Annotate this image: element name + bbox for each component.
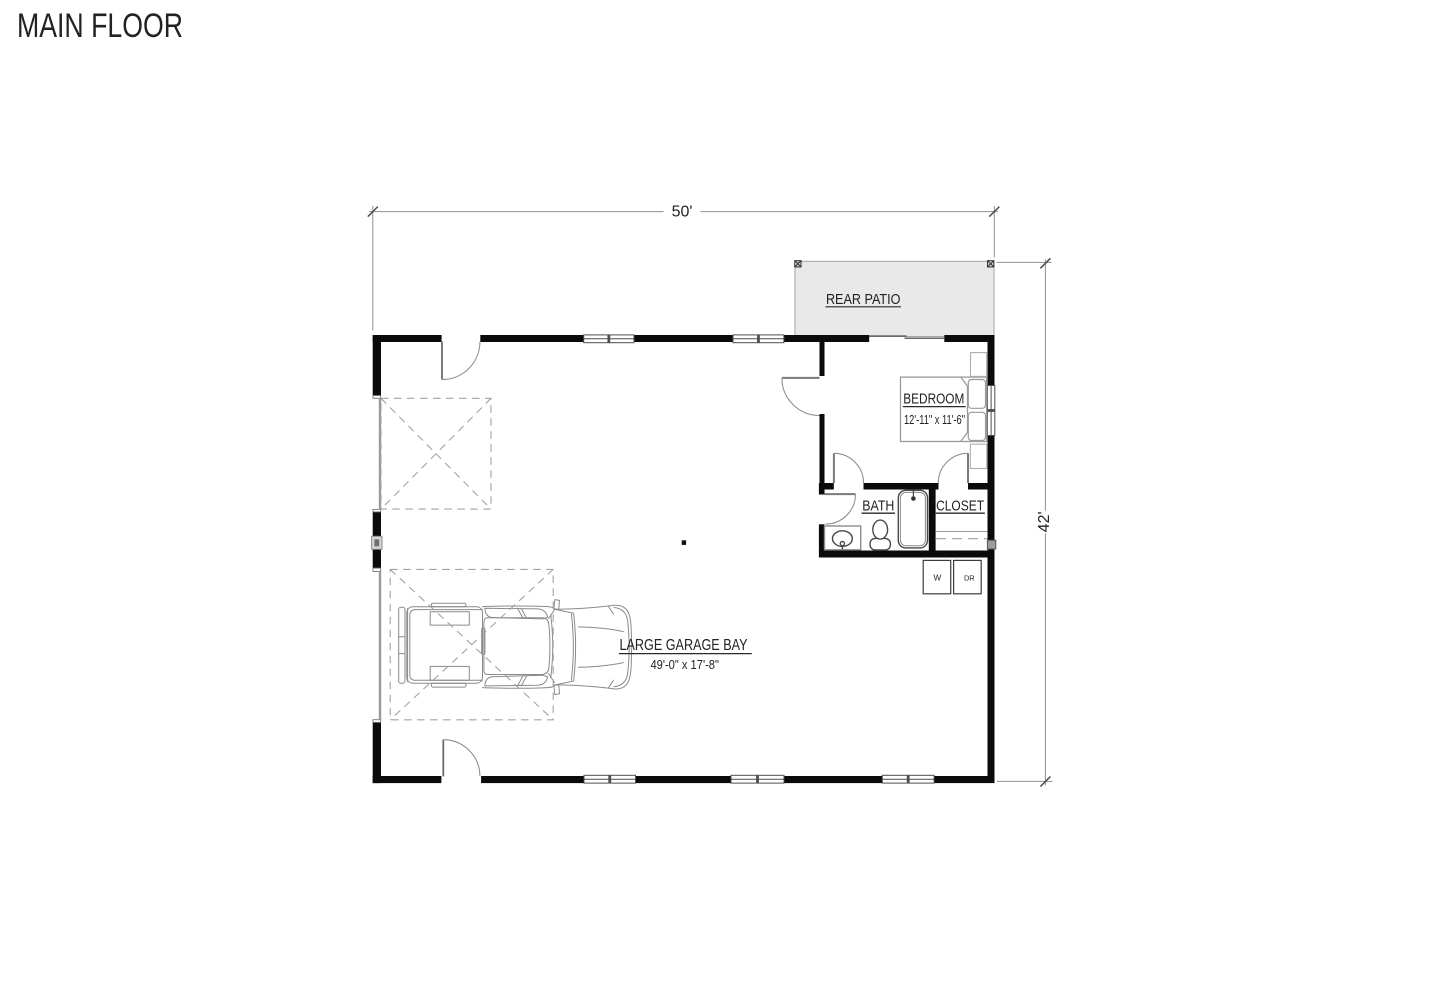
svg-text:DR: DR [964,573,975,582]
svg-text:BATH: BATH [862,499,894,515]
svg-text:12'-11" x 11'-6": 12'-11" x 11'-6" [904,412,965,427]
svg-text:REAR PATIO: REAR PATIO [826,292,901,308]
svg-text:42': 42' [1036,511,1053,532]
svg-text:49'-0" x 17'-8": 49'-0" x 17'-8" [650,657,719,672]
svg-text:CLOSET: CLOSET [936,499,984,515]
svg-text:BEDROOM: BEDROOM [903,392,964,408]
svg-text:LARGE GARAGE BAY: LARGE GARAGE BAY [620,637,748,654]
svg-text:MAIN FLOOR: MAIN FLOOR [17,7,183,45]
svg-text:W: W [934,574,942,583]
svg-text:50': 50' [672,204,693,221]
